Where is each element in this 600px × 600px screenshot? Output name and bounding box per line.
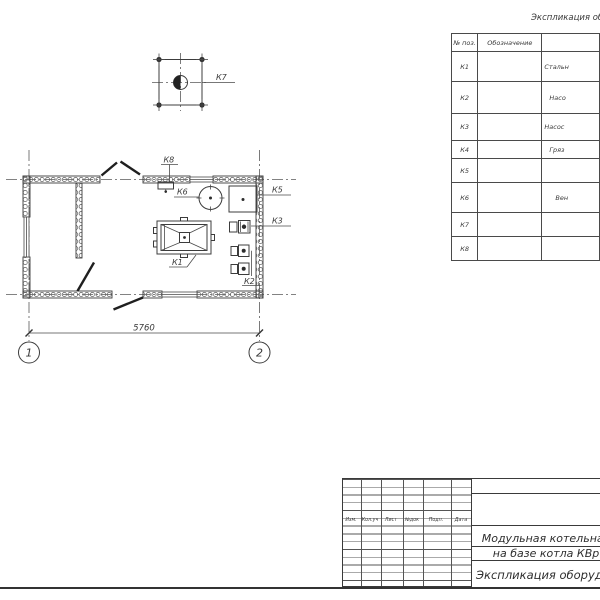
designation-cell: [478, 183, 542, 213]
door-leaf-bottom: [114, 298, 144, 310]
door-leaf-top-1: [102, 163, 118, 176]
stack-symbol-fill: [174, 76, 181, 90]
name-cell: Вен: [542, 183, 600, 213]
drawing-sheet: К7: [0, 0, 600, 600]
pump-dot: [242, 225, 246, 229]
header-data: Дата: [450, 517, 472, 525]
label-k5: К5: [272, 186, 283, 195]
label-k7: К7: [216, 73, 228, 82]
boiler-stub-right: [211, 235, 215, 241]
name-cell: [542, 213, 600, 237]
wall-top-right: [213, 176, 263, 183]
label-k1: К1: [172, 258, 183, 267]
walls: [23, 176, 263, 298]
tank-center-dot: [242, 198, 245, 201]
name-cell: Стальн: [542, 52, 600, 82]
boiler-brace: [190, 225, 208, 234]
header-izm: Изм.: [342, 517, 360, 525]
equipment-table: № поз. Обозначение К1 Стальн К2 Насо К3 …: [451, 33, 600, 261]
boiler-stub-left: [154, 241, 158, 247]
sheet-frame-line: [0, 587, 600, 589]
door-leaf-top-2: [121, 162, 141, 175]
title-block-main: Модульная котельная на базе котла КВр Эк…: [472, 478, 600, 587]
pos-cell: К4: [452, 141, 478, 159]
title-block-cell: [472, 479, 600, 494]
wall-top-left: [23, 176, 100, 183]
designation-cell: [478, 82, 542, 114]
table-row: К6 Вен: [452, 183, 600, 213]
boiler-flue-dot: [183, 236, 186, 239]
designation-cell: [478, 159, 542, 183]
boiler-brace: [161, 225, 180, 234]
table-row: К2 Насо: [452, 82, 600, 114]
boiler-brace: [161, 243, 180, 251]
project-title-row1: Модульная котельная: [472, 526, 600, 547]
pos-cell: К3: [452, 114, 478, 141]
pump-motor: [230, 222, 238, 232]
table-row: К3 Насос: [452, 114, 600, 141]
name-cell: [542, 159, 600, 183]
label-k8: К8: [164, 156, 175, 165]
label-k6: К6: [177, 188, 188, 197]
wall-bottom-mid: [143, 291, 162, 298]
doors: [78, 162, 144, 310]
pos-cell: К2: [452, 82, 478, 114]
col-header-pos: № поз.: [452, 34, 478, 52]
header-koluch: Кол.уч: [360, 517, 380, 525]
boiler-stub-top: [181, 218, 188, 222]
pump-dot: [242, 249, 246, 253]
pos-cell: К6: [452, 183, 478, 213]
name-cell: Насос: [542, 114, 600, 141]
boiler-stub-left: [154, 228, 158, 234]
pump-motor: [231, 265, 238, 274]
axis-bubble-2-label: 2: [256, 347, 263, 360]
fan-k6: К6: [174, 185, 225, 212]
label-k2: К2: [244, 277, 255, 286]
anchor-bolt: [196, 99, 208, 111]
pump-dot: [242, 267, 246, 271]
door-leaf-interior: [78, 263, 95, 292]
pos-cell: К1: [452, 52, 478, 82]
col-header-name: [542, 34, 600, 52]
table-row: К1 Стальн: [452, 52, 600, 82]
revision-headers: Изм. Кол.уч Лист №док Подп. Дата: [342, 517, 472, 525]
dimension: 5760 1 2: [19, 324, 271, 364]
table-row: К7: [452, 213, 600, 237]
document-name-row: Экспликация оборудования: [472, 561, 600, 588]
partition-wall: [76, 183, 82, 258]
header-list: Лист: [380, 517, 402, 525]
wall-left-upper: [23, 176, 30, 217]
designation-cell: [478, 114, 542, 141]
table-row: К8: [452, 237, 600, 261]
name-cell: Гряз: [542, 141, 600, 159]
wall-left-lower: [23, 257, 30, 298]
pos-cell: К5: [452, 159, 478, 183]
anchor-bolt: [196, 54, 208, 66]
table-row: К4 Гряз: [452, 141, 600, 159]
vent-k8: К8: [158, 156, 178, 194]
anchor-bolt: [153, 54, 165, 66]
header-ndok: №док: [402, 517, 422, 525]
designation-cell: [478, 237, 542, 261]
boiler-brace: [190, 243, 208, 251]
anchor-bolt: [153, 99, 165, 111]
document-name: Экспликация оборудования: [472, 568, 600, 582]
designation-cell: [478, 213, 542, 237]
chimney-pad-k7: К7: [152, 53, 235, 111]
dimension-value: 5760: [133, 324, 155, 334]
title-block-cell: [472, 494, 600, 526]
pos-cell: К8: [452, 237, 478, 261]
revision-grid: [342, 478, 472, 587]
equipment-table-title: Экспликация оборудования: [531, 13, 600, 23]
table-row: К5: [452, 159, 600, 183]
axis-bubble-1-label: 1: [26, 347, 33, 360]
header-podp: Подп.: [422, 517, 450, 525]
pos-cell: К7: [452, 213, 478, 237]
fan-center-dot: [209, 197, 212, 200]
designation-cell: [478, 52, 542, 82]
leader-k1: [187, 255, 196, 267]
designation-cell: [478, 141, 542, 159]
boiler-k1: К1: [154, 218, 215, 268]
project-title-line2: на базе котла КВр: [472, 547, 600, 560]
wall-bottom-left: [23, 291, 112, 298]
pump-motor: [231, 247, 238, 256]
project-title-row2: на базе котла КВр: [472, 547, 600, 561]
label-k3: К3: [272, 217, 283, 226]
project-title-line1: Модульная котельная: [472, 532, 600, 546]
name-cell: Насо: [542, 82, 600, 114]
wall-bottom-right: [197, 291, 263, 298]
boiler-stub-bottom: [181, 254, 188, 258]
vent-dot: [164, 190, 167, 193]
col-header-designation: Обозначение: [478, 34, 542, 52]
name-cell: [542, 237, 600, 261]
